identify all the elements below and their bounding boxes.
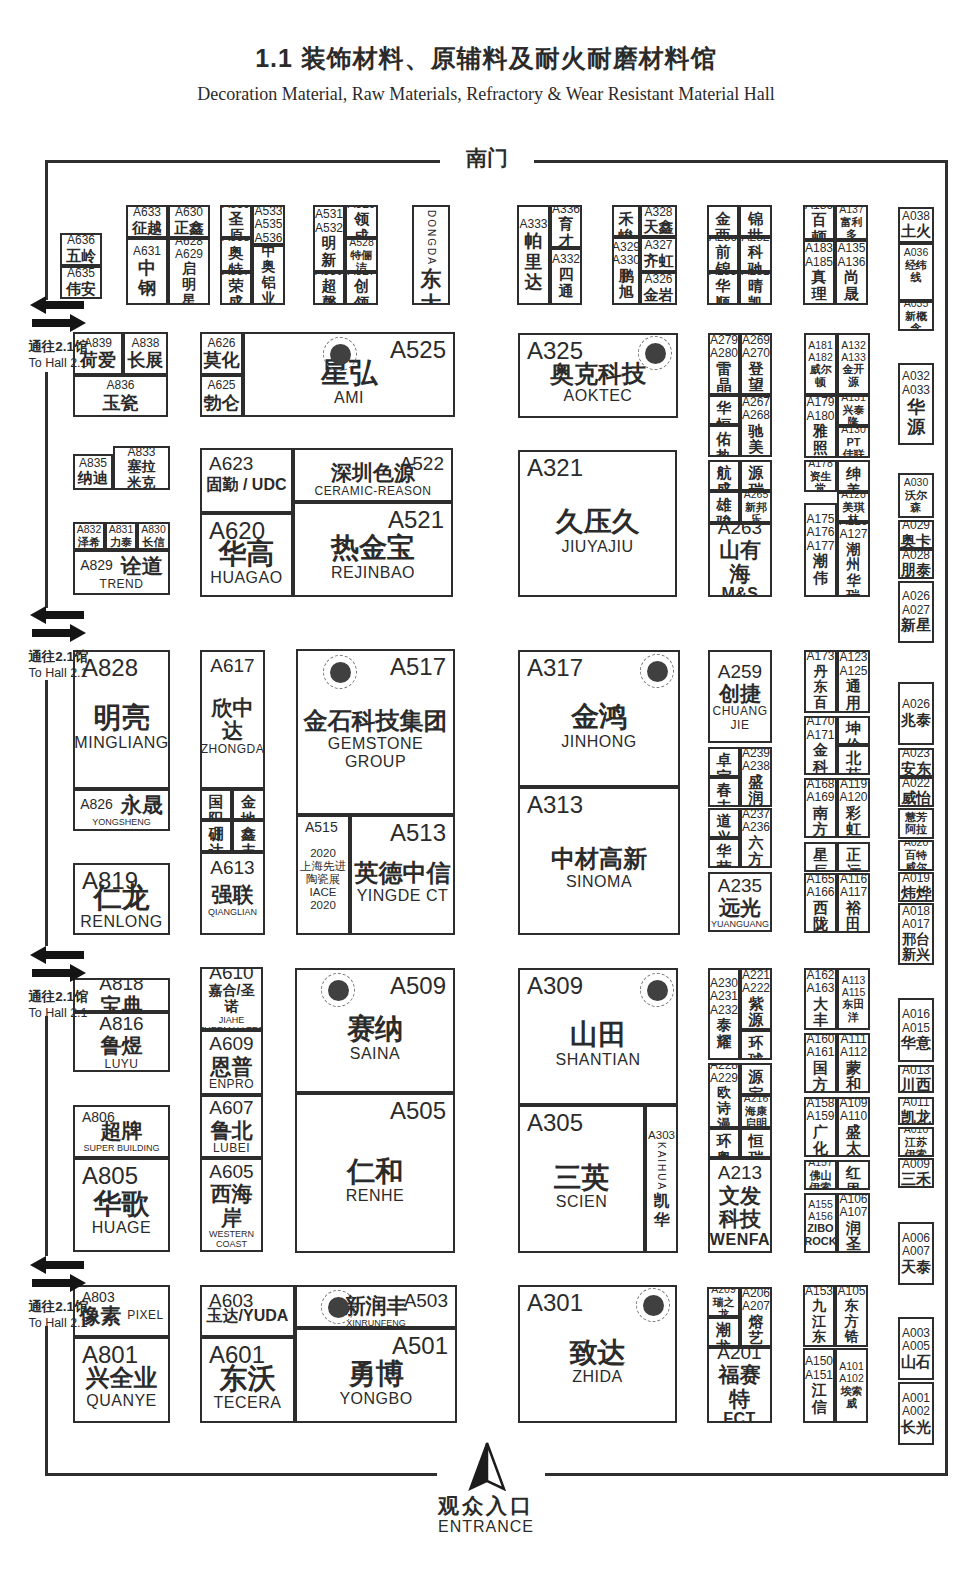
booth-name-cn: 埃索威: [838, 1385, 865, 1410]
booth-id: A003 A005: [902, 1327, 930, 1354]
booth-name-cn: 南方: [807, 805, 834, 838]
booth-a155: A155 A156ZIBO ROCK: [804, 1193, 837, 1253]
booth-a326: A326金岩: [640, 272, 677, 305]
booth-name-cn: 华荣: [711, 843, 737, 868]
booth-a235: A235远光YUANGUANG: [708, 872, 772, 932]
booth-name-cn: 山石: [901, 1354, 931, 1371]
booth-a829: A829诠道TREND: [73, 550, 170, 595]
booth-name-cn: 英德中信: [355, 860, 451, 887]
booth-name-cn: 雄骏: [711, 497, 737, 523]
booth-id: A228 A229: [710, 1063, 738, 1085]
booth-a227: A227环奥: [708, 1128, 740, 1158]
booth-name-cn: 帕 里 达: [525, 231, 543, 291]
booth-id: A617: [202, 655, 263, 676]
booth-name-cn: 炜烨: [901, 885, 931, 902]
booth-id: A035: [904, 301, 929, 310]
booth-name-cn: 绅美: [840, 466, 867, 492]
booth-a620: A620华高HUAGAO: [200, 513, 293, 597]
booth-name-cn: 佛山 伊索: [810, 1169, 832, 1190]
booth-name-cn: 金石科技集团: [304, 708, 448, 735]
booth-a011: A011凯龙: [898, 1097, 934, 1125]
booth-name-cn: 四通: [553, 266, 579, 300]
column-marker-dot: [640, 973, 674, 1007]
booth-name-en: LUYU: [76, 1058, 167, 1071]
booth-a303: A303凯 华KAIHUA: [645, 1105, 678, 1253]
column-marker-dot: [323, 337, 357, 371]
hall-link-label-cn: 通往2.1馆: [8, 338, 108, 356]
booth-name-cn: 奥特: [223, 245, 249, 272]
booth-a278: A278华恒: [708, 395, 740, 425]
to-hall-2-1-link: 通往2.1馆To Hall 2.1: [8, 946, 108, 1020]
booth-name-cn: 鲁煜: [101, 1034, 143, 1058]
booth-id: A206 A207: [742, 1287, 770, 1314]
booth-id: A162 A163: [806, 969, 834, 996]
booth-name-cn: 创捷: [719, 682, 761, 706]
booth-id: A010: [904, 1127, 929, 1136]
booth-id: A835: [79, 457, 107, 470]
booth-id: A601: [209, 1342, 265, 1369]
booth-name-en: JINHONG: [561, 733, 637, 751]
booth-name-cn: 天鑫: [644, 219, 674, 236]
booth-id: A806: [82, 1110, 115, 1126]
booth-name-cn: 环奥: [711, 1133, 737, 1158]
booth-name-cn: 科驰: [742, 244, 769, 272]
booth-name-cn: 江信: [806, 1382, 832, 1416]
booth-name-cn: 广化: [807, 1124, 834, 1157]
booth-name-en: MINGLIANG: [74, 734, 168, 752]
booth-name-cn: 邢台 新兴: [902, 932, 930, 963]
booth-name-cn: 长信: [143, 536, 165, 548]
booth-name-en: YONGBO: [339, 1390, 412, 1408]
booth-a131: A131兴泰隆: [837, 395, 870, 426]
booth-a006: A006 A007天泰: [898, 1222, 934, 1285]
booth-name-cn: 三英: [554, 1162, 610, 1193]
booth-a328: A328天鑫: [640, 205, 677, 237]
booth-id: A609: [209, 1033, 253, 1054]
booth-a329: A329 A330鹏旭: [612, 237, 640, 305]
booth-name-cn: 大丰: [807, 996, 834, 1030]
booth-name-cn: 百特 威尔: [905, 849, 927, 871]
booth-id: A183 A185: [805, 242, 833, 269]
booth-name-en: RENLONG: [80, 913, 163, 931]
booth-a614: A614鑫丰: [232, 820, 265, 852]
booth-a130: A130PT 佳联: [837, 426, 870, 458]
booth-name-cn: 中 钢: [138, 258, 156, 298]
booth-id: A201: [717, 1347, 761, 1363]
booth-id: A521: [388, 507, 444, 534]
booth-id: A029: [902, 520, 930, 533]
booth-name-cn: 江苏 伊索: [905, 1136, 927, 1157]
booth-name-cn: 超馨: [316, 278, 342, 305]
booth-id: A317: [527, 655, 583, 682]
booth-name-cn: 新星: [901, 617, 931, 634]
booth-a321: A321久压久JIUYAJIU: [518, 450, 677, 597]
booth-name-cn: 鲁北: [211, 1119, 253, 1143]
booth-id: A607: [209, 1097, 253, 1118]
booth-id: A630: [175, 206, 203, 219]
booth-name-cn: 明新: [316, 235, 342, 269]
booth-a836: A836玉瓷: [73, 375, 168, 417]
booth-a286: A286前锦: [707, 237, 739, 272]
booth-name-cn: 恒瑞: [743, 1133, 769, 1158]
booth-name-cn: 华 源: [907, 397, 925, 437]
booth-a160: A160 A161国方: [804, 1033, 837, 1093]
booth-a501: A501勇博YONGBO: [295, 1328, 457, 1423]
to-hall-2-1-link: 通往2.1馆To Hall 2.1: [8, 1256, 108, 1330]
booth-name-cn: ZIBO ROCK: [804, 1222, 836, 1247]
booth-name-cn: 东田洋: [840, 998, 867, 1023]
booth-a137: A137富利多: [835, 205, 868, 240]
booth-id: A333: [519, 218, 547, 231]
booth-a230: A230 A231 A232泰耀: [708, 968, 740, 1060]
booth-id: A522: [400, 453, 444, 474]
booth-name-cn: 经纬线: [901, 259, 931, 284]
booth-a336: A336育才: [550, 205, 582, 248]
booth-a623: A623固勤 / UDC: [200, 448, 293, 513]
booth-name-en: ZHONGDA: [201, 743, 265, 756]
booth-id: A826: [80, 797, 113, 813]
booth-name-en: TECERA: [214, 1394, 282, 1412]
booth-a287: A287金酉: [707, 205, 739, 237]
booth-name-cn: 蒙和: [840, 1060, 867, 1093]
booth-a121: A121北苑: [837, 745, 870, 775]
booth-a228: A228 A229欧 诗 漫: [708, 1063, 740, 1128]
booth-name-cn: 致达: [570, 1337, 626, 1368]
booth-id: A172 A173: [806, 650, 834, 664]
booth-id: A022: [902, 777, 930, 790]
booth-a601: A601东沃TECERA: [200, 1337, 295, 1423]
booth-a208: A208潮龙: [707, 1317, 740, 1347]
booth-id: A610: [209, 967, 253, 983]
booth-name-cn: 环球: [743, 1035, 769, 1060]
booth-name-cn: 富利多: [838, 216, 865, 240]
booth-name-cn: 远光: [719, 896, 761, 920]
booth-name-cn: 三禾: [901, 1171, 931, 1188]
booth-a019: A019炜烨: [898, 872, 934, 902]
booth-id: A831: [109, 524, 134, 536]
booth-id: A028: [902, 549, 930, 562]
booth-name-cn: 山有海: [711, 538, 769, 585]
booth-a018: A018 A017邢台 新兴: [898, 903, 934, 965]
booth-name-cn: 长光: [901, 1419, 931, 1436]
booth-id: A135 A136: [837, 242, 865, 269]
booth-name-cn: 航盛: [711, 465, 737, 491]
booth-id: A030: [904, 477, 929, 489]
booth-id: A631: [133, 245, 161, 258]
booth-name-cn: 金岩: [644, 287, 674, 304]
booth-cell-9: 中奥 铝业: [252, 245, 285, 305]
booth-name-cn: 雅照: [807, 423, 834, 457]
booth-a252: A252道兴: [708, 808, 740, 838]
booth-a106: A106 A107润圣: [837, 1193, 870, 1253]
booth-id: A305: [527, 1110, 583, 1137]
booth-a617: A617欣中达ZHONGDA: [200, 650, 265, 789]
booth-a521: A521热金宝REJINBAO: [293, 502, 453, 597]
booth-id: A116 A117: [840, 873, 867, 900]
booth-name-cn: 六方: [743, 835, 769, 868]
booth-id: A019: [902, 872, 930, 885]
booth-id: A001 A002: [902, 1392, 930, 1419]
booth-name-cn: 长展: [128, 350, 164, 370]
booth-id: A237 A236: [742, 808, 770, 835]
booth-name-cn: 中奥 铝业: [255, 245, 282, 305]
booth-id: A838: [131, 337, 159, 350]
booth-name-en: SINOMA: [566, 873, 632, 891]
booth-name-en: WESTERN COAST: [209, 1229, 254, 1249]
booth-id: A836: [106, 379, 134, 392]
booth-name-cn: 九江 东庆: [806, 1298, 832, 1347]
booth-name-cn: 特俪洁: [348, 249, 375, 272]
booth-a216: A216海康 启明: [740, 1095, 772, 1128]
to-hall-2-1-link: 通往2.1馆To Hall 2.1: [8, 606, 108, 680]
booth-name-cn: 资生堂: [807, 470, 834, 492]
booth-name-en: FCT: [723, 1410, 756, 1423]
booth-a613: A613强联QIANGLIAN: [200, 852, 265, 935]
hall-link-label-cn: 通往2.1馆: [8, 1298, 108, 1316]
booth-name-cn: 华歌: [94, 1188, 150, 1219]
booth-a515: A5152020 上海先进 陶瓷展 IACE 2020: [296, 815, 350, 935]
booth-a213: A213文发 科技WENFA: [708, 1158, 772, 1253]
booth-name-cn: 莫化: [204, 350, 240, 370]
booth-name-en: AOKTEC: [564, 387, 633, 405]
booth-id: A605: [209, 1161, 253, 1182]
booth-a256: A256卓宇: [708, 747, 740, 777]
column-marker-dot: [323, 655, 357, 689]
booth-id: A178: [808, 460, 833, 470]
booth-id: A635: [67, 267, 95, 280]
booth-a206: A206 A207熔艺: [740, 1287, 772, 1347]
booth-name-en: CHUANG JIE: [712, 705, 767, 732]
booth-a111: A111 A112蒙和: [837, 1033, 870, 1093]
booth-name-cn: 塞拉 米克: [128, 459, 156, 490]
booth-a276: A276航盛: [708, 460, 740, 491]
booth-id: A832: [77, 524, 102, 536]
booth-id: A175 A176 A177: [806, 513, 834, 553]
booth-id: A513: [390, 820, 446, 847]
booth-name-cn: 瑞之龙: [710, 1296, 737, 1317]
booth-a615: A615金地: [232, 789, 265, 820]
booth-name-en: YUANGUANG: [711, 919, 769, 929]
booth-a023: A023安东: [898, 748, 934, 777]
booth-a113: A113 A115东田洋: [837, 968, 870, 1030]
booth-a533: A533 A535 A536: [252, 205, 285, 245]
booth-name-cn: 真理: [806, 269, 832, 303]
column-marker-dot: [321, 973, 355, 1007]
booth-id: A628 A629: [175, 238, 203, 261]
booth-a503: A503新润丰XINRUNFENG: [295, 1285, 457, 1328]
booth-id: A501: [392, 1333, 448, 1360]
double-arrow-icon: [30, 606, 86, 642]
booth-name-en: REJINBAO: [331, 564, 415, 582]
booth-a128: A128美琪林: [837, 492, 870, 522]
booth-id: A329 A330: [612, 241, 640, 268]
booth-name-cn: 道兴: [711, 813, 737, 838]
booth-name-en: YONGSHENG: [76, 817, 167, 827]
booth-name-cn: 雷晶: [711, 361, 737, 395]
booth-a150: A150 A151江信: [803, 1348, 835, 1423]
booth-a103: A103 A105东方 锆业: [835, 1285, 868, 1347]
booth-name-cn: 鹏旭: [615, 268, 637, 302]
double-arrow-icon: [30, 1256, 86, 1292]
booth-name-cn: 禾峻: [615, 211, 637, 237]
booth-id: A805: [82, 1163, 138, 1190]
booth-a509: A509赛纳SAINA: [295, 968, 455, 1093]
booth-id: A150 A151: [805, 1355, 833, 1382]
booth-name-en: TREND: [76, 578, 167, 591]
booth-id: A309: [527, 973, 583, 1000]
booth-id: A303: [648, 1129, 675, 1142]
booth-a269: A269 A270登望: [740, 333, 772, 395]
booth-a030: A030沃尔森: [898, 473, 934, 518]
booth-id: A327: [644, 239, 672, 252]
booth-a165: A165 A166西陇: [804, 873, 837, 933]
booth-name-cn: 百顿: [806, 212, 832, 240]
booth-a266: A266源瑞: [740, 460, 772, 491]
booth-name-en: JIAHE THERMALLTEC: [200, 1015, 263, 1030]
booth-a826: A826永晟YONGSHENG: [73, 789, 170, 831]
booth-a170: A170 A171金科: [804, 716, 837, 775]
booth-name-cn: 勃仑: [204, 393, 240, 413]
booth-name-cn: 海康 启明: [745, 1105, 767, 1128]
booth-id: A265: [744, 491, 769, 501]
column-marker-dot: [638, 336, 672, 370]
booth-a237: A237 A236六方: [740, 808, 772, 868]
booth-a332: A332四通: [550, 248, 582, 305]
booth-id: A269 A270: [742, 334, 770, 361]
booth-name-cn: 盛润: [743, 774, 769, 807]
booth-name-cn: 川西: [901, 1077, 931, 1093]
booth-name-cn: 天泰: [901, 1259, 931, 1276]
hall-link-label-en: To Hall 2.1: [8, 356, 108, 370]
booth-name-cn: 久压久: [556, 506, 640, 537]
booth-a333: A333帕 里 达: [517, 205, 550, 305]
booth-name-cn: 征越: [132, 220, 162, 237]
booth-a108: A108红恩: [837, 1160, 870, 1190]
booth-name-en: XINRUNFENG: [346, 1318, 406, 1328]
booth-name-cn: 玉瓷: [103, 393, 139, 413]
hall-link-label-en: To Hall 2.1: [8, 1316, 108, 1330]
booth-name-cn: 沃尔森: [901, 489, 931, 514]
booth-id: A155 A156: [808, 1199, 833, 1223]
booth-name-en: ENPRO: [209, 1078, 254, 1091]
booth-a529: A529领成: [345, 205, 378, 238]
booth-name-cn: 前锦: [710, 244, 736, 272]
booth-id: A179 A180: [806, 396, 834, 423]
booth-id: A158 A159: [806, 1097, 834, 1124]
booth-name-en: SAINA: [350, 1045, 401, 1063]
booth-id: A332: [552, 253, 580, 266]
booth-name-cn: 潮伟: [807, 553, 834, 587]
booth-a801: A801兴全业QUANYE: [73, 1337, 170, 1423]
booth-name-cn: 晴凯: [742, 278, 769, 305]
booth-name-cn: 奥卡: [901, 533, 931, 549]
booth-name-cn: 丹东 百特: [807, 664, 834, 713]
booth-id: A023: [902, 748, 930, 761]
booth-a026: A026兆泰: [898, 682, 934, 745]
booth-name-cn: 源宝: [743, 1069, 769, 1095]
booth-id: A038: [902, 210, 930, 223]
booth-name-cn: 欣中达: [203, 696, 262, 743]
booth-id: A620: [209, 518, 265, 545]
booth-id: A109 A110: [839, 1097, 867, 1124]
booth-name-cn: 通用: [840, 678, 867, 712]
booth-a538: A538奥特: [220, 238, 252, 272]
booth-name-cn: 正远: [840, 847, 867, 872]
booth-id: A216: [744, 1095, 769, 1105]
booth-name-en: HUAGAO: [210, 569, 282, 587]
hall-link-label-cn: 通往2.1馆: [8, 648, 108, 666]
booth-name-cn: 威尔顿: [807, 363, 834, 388]
booth-name-cn: 永晟: [121, 793, 163, 817]
booth-name-cn: 熔艺: [743, 1314, 769, 1347]
booth-id: A101 A102: [839, 1361, 864, 1385]
booth-name-cn: 慧芳 阿拉丁: [901, 811, 931, 839]
double-arrow-icon: [30, 296, 86, 332]
booth-a181: A181 A182威尔顿: [804, 333, 837, 395]
booth-a010: A010江苏 伊索: [898, 1127, 934, 1157]
booth-a219: A219源宝: [740, 1063, 772, 1095]
booth-id: A830: [141, 524, 166, 536]
booth-name-cn: 欧 诗 漫: [717, 1085, 731, 1128]
booth-id: A137: [839, 205, 864, 216]
booth-a152: A152 A153九江 东庆: [803, 1285, 835, 1347]
booth-id: A301: [527, 1290, 583, 1317]
booth-id: A525: [390, 337, 446, 364]
booth-a022: A022威怡: [898, 777, 934, 807]
booth-name-en: YINGDE CT: [357, 887, 449, 905]
booth-id: A819: [82, 868, 138, 895]
booth-a001: A001 A002长光: [898, 1382, 934, 1445]
booth-a255: A255春丰: [708, 777, 740, 807]
booth-name-cn: 金开源: [840, 363, 867, 388]
booth-a522: A522深圳色源CERAMIC-REASON: [293, 448, 453, 502]
booth-name-en: LUBEI: [213, 1142, 250, 1155]
booth-id: A026 A027: [902, 590, 930, 617]
booth-a636: A636五岭: [60, 233, 102, 266]
booth-id: A517: [390, 654, 446, 681]
booth-a635: A635伟安: [60, 266, 102, 299]
booth-id: A160 A161: [806, 1033, 834, 1060]
booth-id: A032 A033: [902, 370, 930, 397]
booth-a179: A179 A180雅照: [804, 395, 837, 458]
booth-a038: A038土火: [898, 207, 934, 243]
booth-id: A531 A532: [315, 208, 343, 235]
booth-a835: A835纳迪: [73, 454, 113, 490]
booth-id: A259: [718, 661, 762, 682]
booth-name-cn: 凯龙: [901, 1109, 931, 1125]
booth-id: A132 A133: [841, 340, 866, 364]
booth-id: A209: [711, 1287, 736, 1296]
column-marker-dot: [321, 1290, 355, 1324]
booth-a833: A833塞拉 米克: [113, 446, 170, 490]
booth-id: A157: [808, 1160, 833, 1169]
booth-id: A313: [527, 792, 583, 819]
booth-a305: A305三英SCIEN: [518, 1105, 645, 1253]
booth-id: A130: [841, 426, 866, 436]
booth-name-cn: 圣原: [223, 211, 249, 238]
booth-a527: A527创领: [345, 272, 378, 305]
booth-name-cn: 泽希: [78, 536, 100, 548]
booth-a029: A029奥卡: [898, 520, 934, 549]
booth-a016: A016 A015华意: [898, 998, 934, 1062]
booth-name-en: PIXEL: [127, 1309, 164, 1322]
booth-name-en: CERAMIC-REASON: [314, 485, 431, 498]
booth-name-en: SUPER BUILDING: [83, 1143, 159, 1153]
booth-a630: A630正鑫: [168, 205, 210, 238]
booth-name-cn: 尚晟: [838, 269, 865, 303]
booth-name-cn: 勇博: [348, 1358, 404, 1389]
booth-a183: A183 A185真理: [803, 240, 835, 305]
